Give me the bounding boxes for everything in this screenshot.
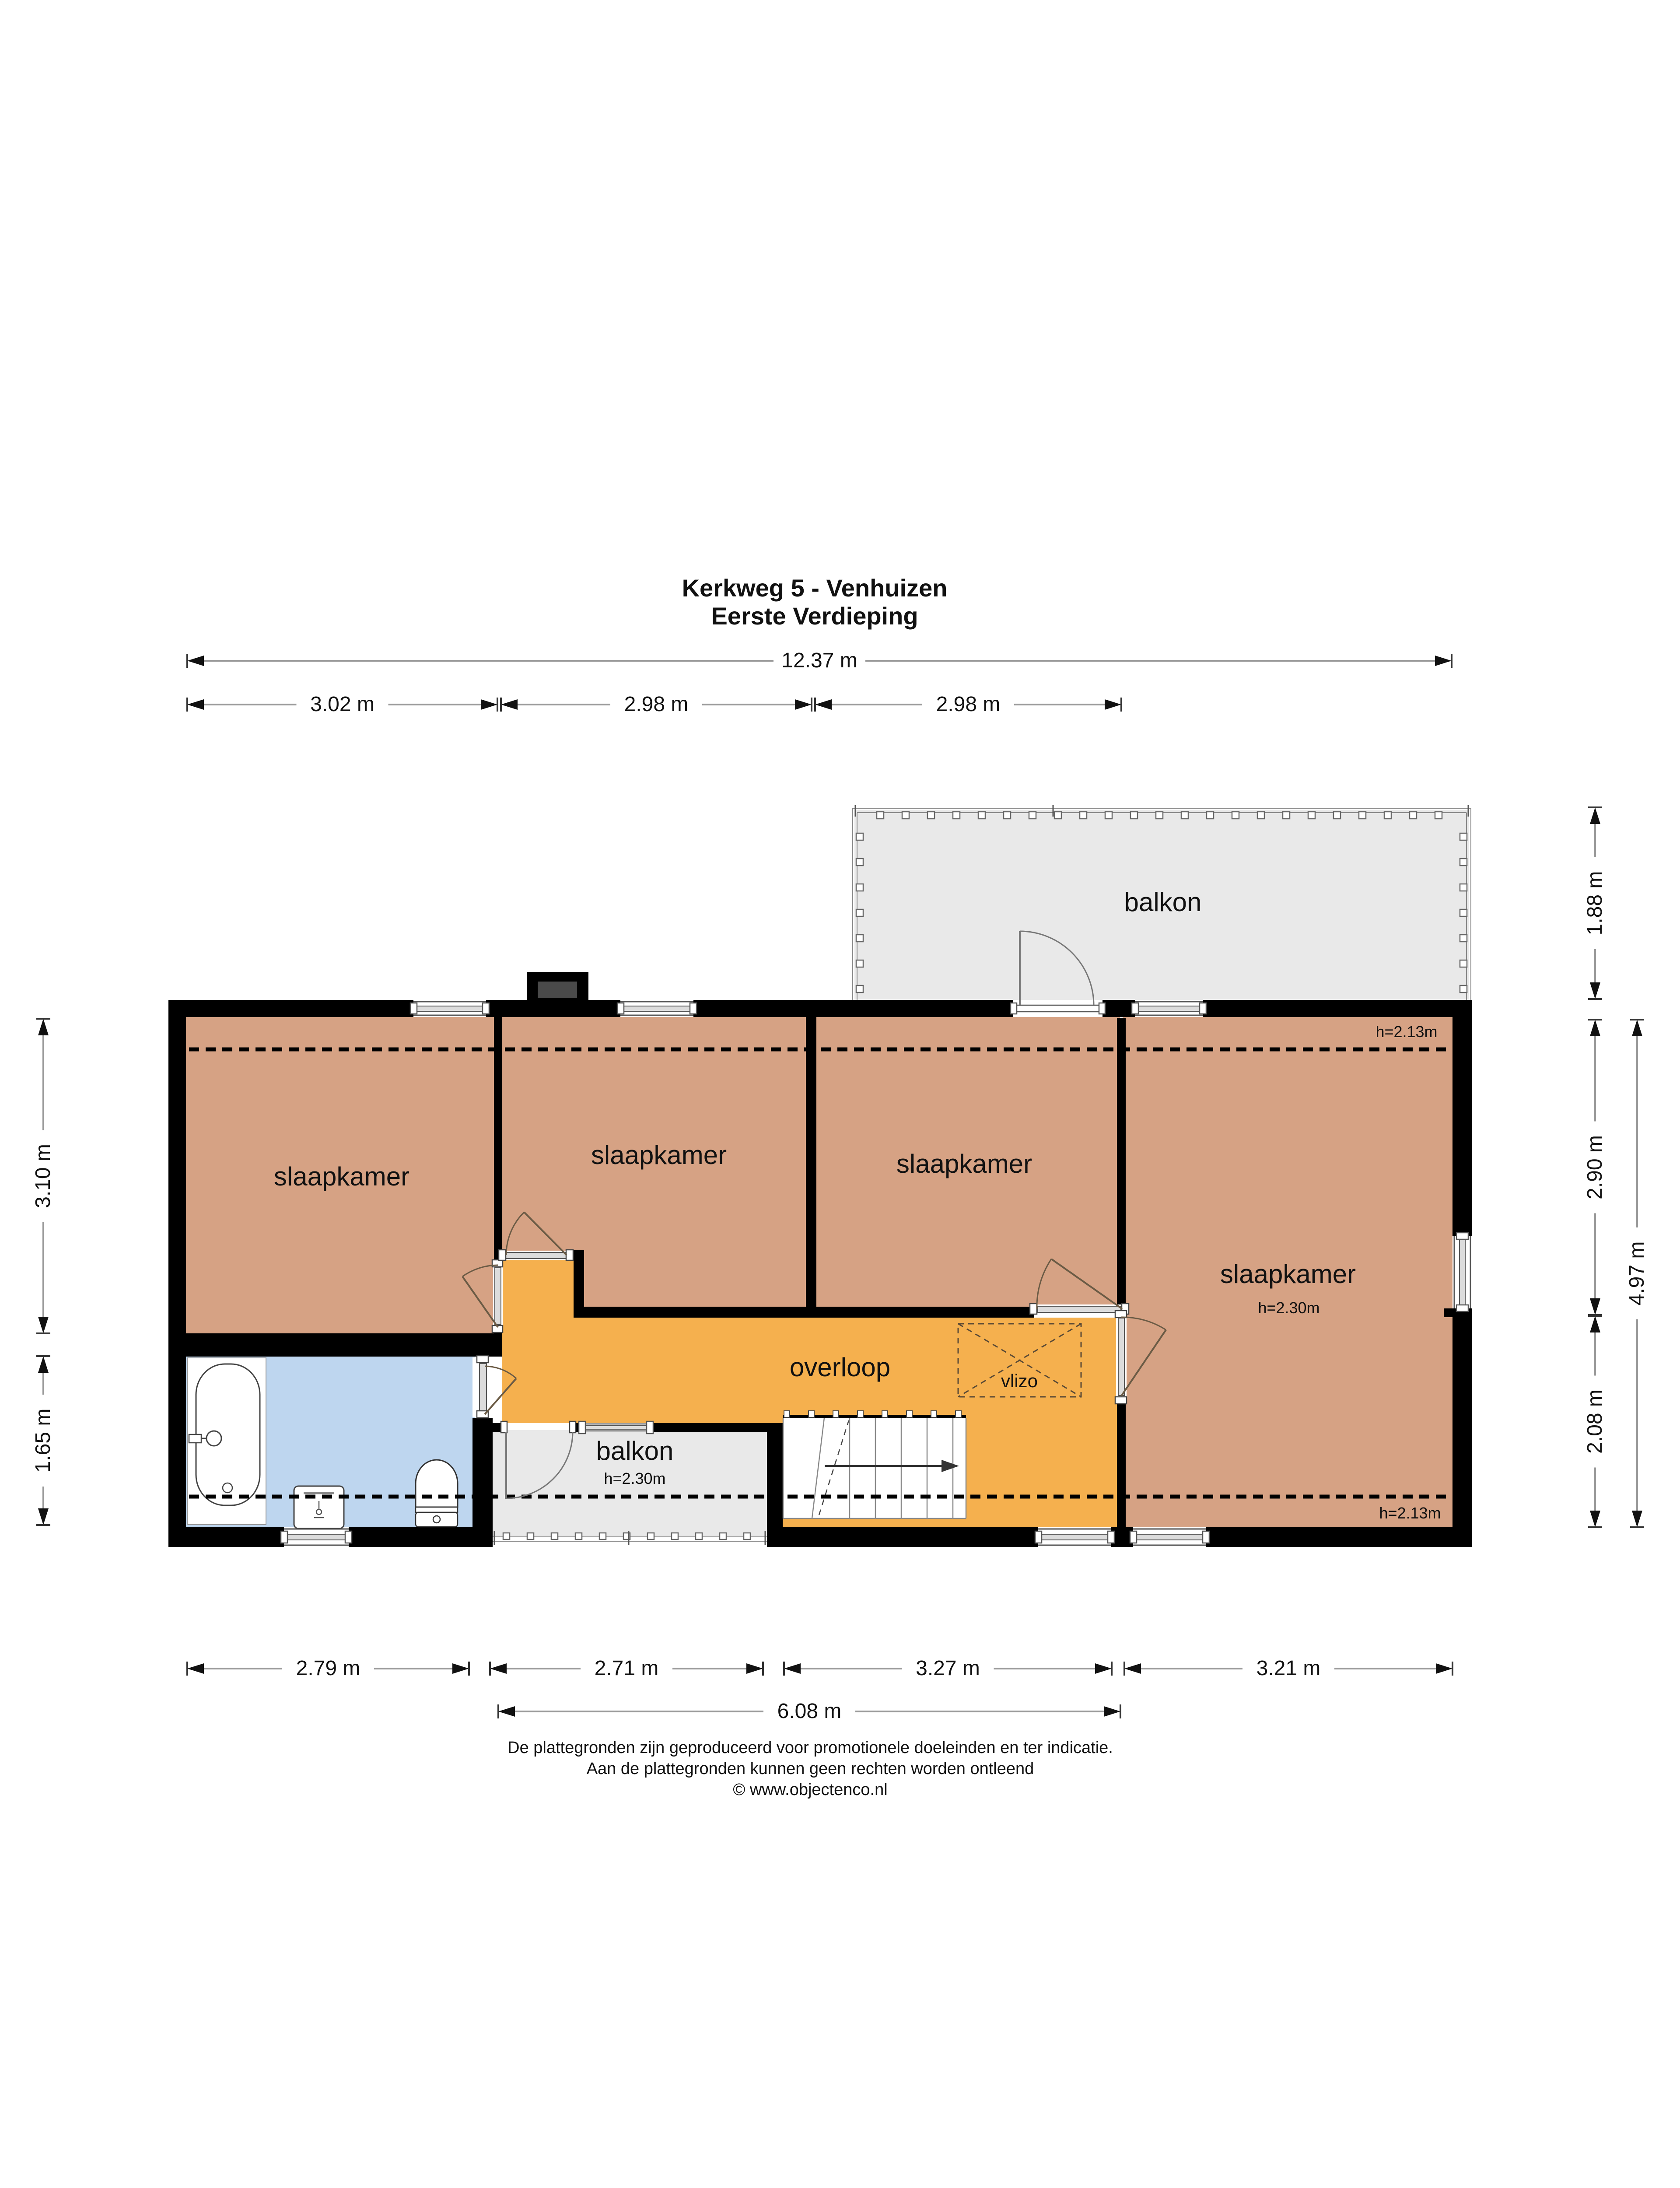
svg-text:2.98 m: 2.98 m: [936, 693, 1001, 716]
svg-text:De plattegronden zijn geproduc: De plattegronden zijn geproduceerd voor …: [507, 1739, 1113, 1757]
svg-text:h=2.13m: h=2.13m: [1379, 1504, 1441, 1522]
svg-text:4.97 m: 4.97 m: [1625, 1241, 1648, 1306]
svg-text:vlizo: vlizo: [1001, 1371, 1038, 1391]
svg-text:2.79 m: 2.79 m: [296, 1657, 360, 1680]
svg-text:2.08 m: 2.08 m: [1583, 1389, 1606, 1454]
svg-text:Kerkweg 5 - Venhuizen: Kerkweg 5 - Venhuizen: [682, 574, 948, 602]
svg-text:slaapkamer: slaapkamer: [591, 1140, 727, 1170]
svg-text:2.71 m: 2.71 m: [595, 1657, 659, 1680]
svg-text:Eerste Verdieping: Eerste Verdieping: [711, 602, 918, 630]
svg-text:1.65 m: 1.65 m: [31, 1409, 55, 1473]
svg-text:h=2.30m: h=2.30m: [604, 1469, 665, 1487]
svg-text:3.27 m: 3.27 m: [916, 1657, 980, 1680]
svg-text:overloop: overloop: [790, 1353, 890, 1382]
svg-text:balkon: balkon: [1124, 887, 1202, 917]
svg-text:3.21 m: 3.21 m: [1256, 1657, 1321, 1680]
svg-text:2.98 m: 2.98 m: [624, 693, 689, 716]
svg-text:slaapkamer: slaapkamer: [896, 1149, 1032, 1178]
svg-text:12.37 m: 12.37 m: [781, 649, 857, 672]
svg-text:h=2.13m: h=2.13m: [1375, 1023, 1437, 1041]
svg-text:1.88 m: 1.88 m: [1583, 871, 1606, 936]
svg-text:3.02 m: 3.02 m: [310, 693, 374, 716]
svg-text:Aan de plattegronden kunnen ge: Aan de plattegronden kunnen geen rechten…: [587, 1760, 1034, 1778]
svg-text:© www.objectenco.nl: © www.objectenco.nl: [733, 1781, 887, 1799]
svg-text:slaapkamer: slaapkamer: [1220, 1259, 1356, 1289]
svg-text:3.10 m: 3.10 m: [31, 1144, 55, 1208]
svg-text:2.90 m: 2.90 m: [1583, 1135, 1606, 1199]
svg-text:slaapkamer: slaapkamer: [274, 1162, 409, 1191]
svg-text:6.08 m: 6.08 m: [777, 1700, 842, 1723]
svg-text:h=2.30m: h=2.30m: [1258, 1299, 1319, 1317]
svg-text:balkon: balkon: [596, 1436, 674, 1466]
